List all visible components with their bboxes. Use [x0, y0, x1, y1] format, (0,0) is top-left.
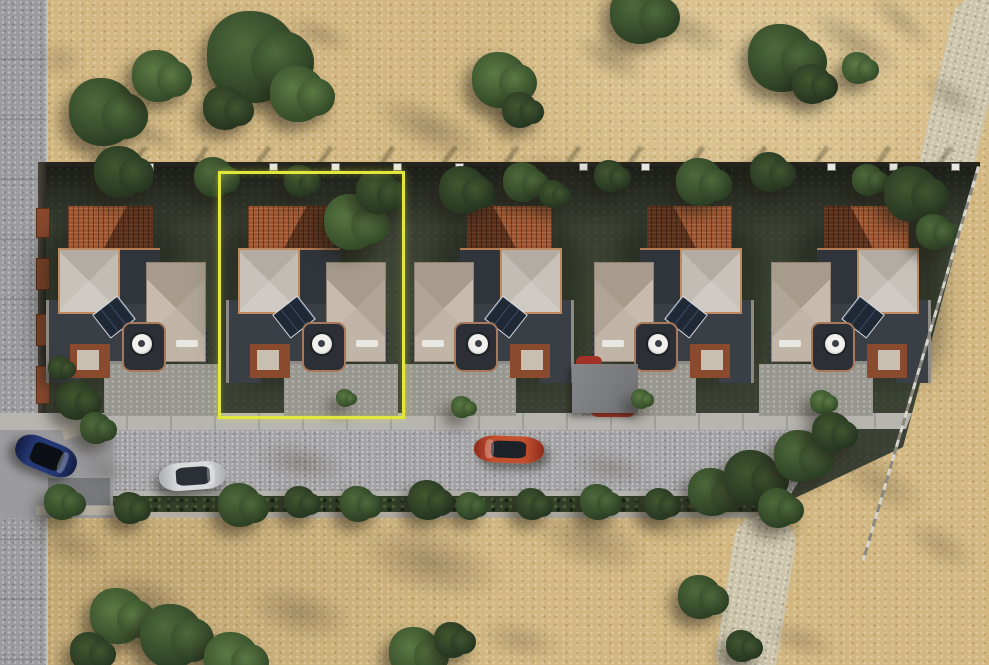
hot-tub [132, 334, 152, 354]
house-1[interactable] [38, 172, 220, 417]
fence-post [951, 163, 960, 171]
tiled-roof [647, 206, 732, 249]
rooftop-unit [422, 340, 444, 347]
house-3[interactable] [400, 172, 582, 417]
tree [750, 152, 790, 192]
selected-plot-highlight[interactable] [218, 171, 405, 419]
tree [539, 180, 567, 208]
entry-roof [70, 344, 110, 378]
tree [270, 66, 326, 122]
tree [408, 480, 448, 520]
fence-post [331, 163, 340, 171]
fence-post [641, 163, 650, 171]
tree [758, 488, 798, 528]
tiled-roof [68, 206, 153, 249]
tree [792, 64, 832, 104]
tree [132, 50, 184, 102]
tree [48, 356, 72, 380]
tree [94, 146, 146, 198]
tree [451, 396, 473, 418]
entry-roof [510, 344, 550, 378]
tree [284, 486, 316, 518]
tree [218, 483, 262, 527]
aerial-site-render: Aerial 3D render of a row of five houses… [0, 0, 989, 665]
tree [203, 86, 247, 130]
rooftop-unit [602, 340, 624, 347]
tree [916, 214, 952, 250]
tree [456, 492, 484, 520]
tree [644, 488, 676, 520]
tree [678, 575, 722, 619]
rooftop-unit [779, 340, 801, 347]
tree [69, 78, 137, 146]
tree [44, 484, 80, 520]
tree [812, 412, 852, 452]
tree [631, 389, 651, 409]
tree [439, 166, 487, 214]
tree [140, 604, 204, 665]
tree [434, 622, 470, 658]
fence-post [393, 163, 402, 171]
tree [852, 164, 884, 196]
car-glass [491, 440, 527, 459]
tree [80, 412, 112, 444]
hot-tub [468, 334, 488, 354]
tree [726, 630, 758, 662]
hot-tub [648, 334, 668, 354]
tree [580, 484, 616, 520]
hot-tub [825, 334, 845, 354]
tree [503, 162, 543, 202]
tree [594, 160, 626, 192]
car-silver [158, 460, 227, 493]
fence-post [269, 163, 278, 171]
car-glass [176, 466, 211, 487]
tree [810, 390, 834, 414]
tree [502, 92, 538, 128]
tree [114, 492, 146, 524]
tree [516, 488, 548, 520]
carport-canopy [572, 364, 638, 413]
car-windshield [485, 439, 494, 458]
tiled-roof [467, 206, 552, 249]
tree [340, 486, 376, 522]
rooftop-unit [176, 340, 198, 347]
fence-post [827, 163, 836, 171]
entry-roof [867, 344, 907, 378]
entry-roof [690, 344, 730, 378]
car-red [474, 435, 545, 464]
driveway [104, 364, 218, 416]
tree [842, 52, 874, 84]
tree [676, 158, 724, 206]
